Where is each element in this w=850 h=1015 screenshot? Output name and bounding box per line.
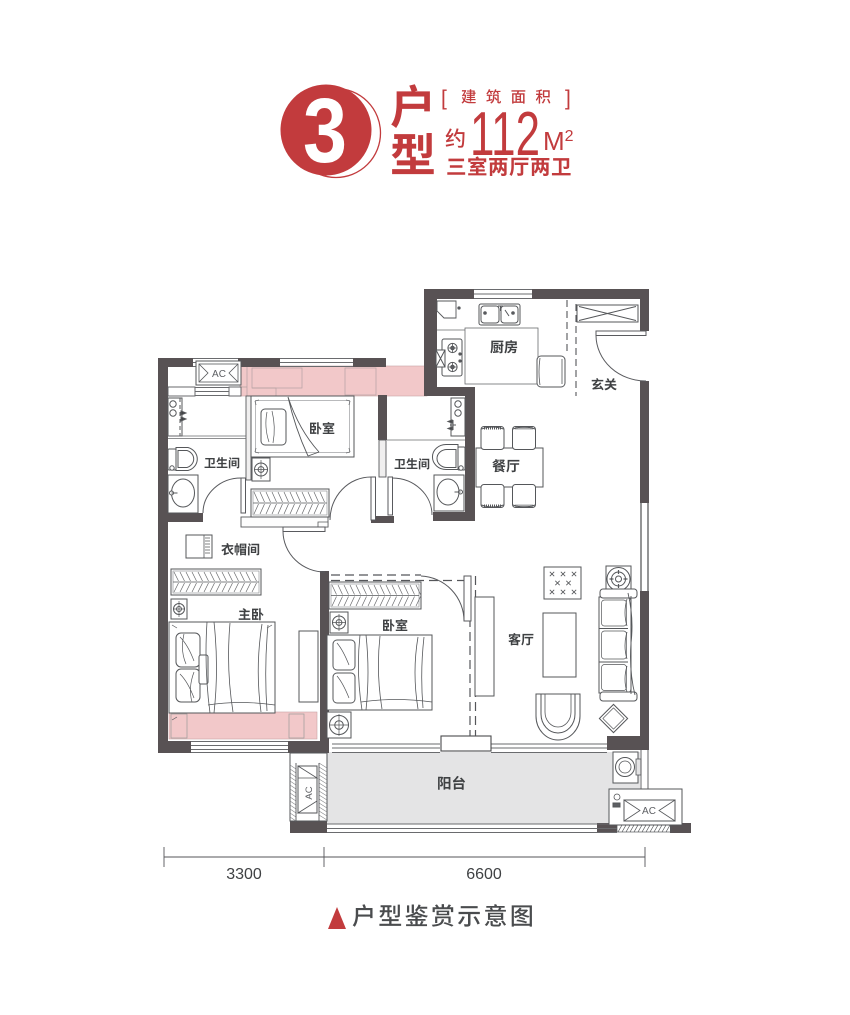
svg-text:[: [ bbox=[441, 87, 447, 110]
svg-text:3300: 3300 bbox=[226, 866, 262, 883]
svg-text:3: 3 bbox=[303, 80, 347, 182]
svg-text:6600: 6600 bbox=[466, 866, 502, 883]
svg-text:AC: AC bbox=[212, 369, 226, 380]
svg-text:AC: AC bbox=[304, 786, 315, 799]
svg-text:AC: AC bbox=[642, 806, 656, 817]
svg-text:]: ] bbox=[565, 87, 571, 110]
